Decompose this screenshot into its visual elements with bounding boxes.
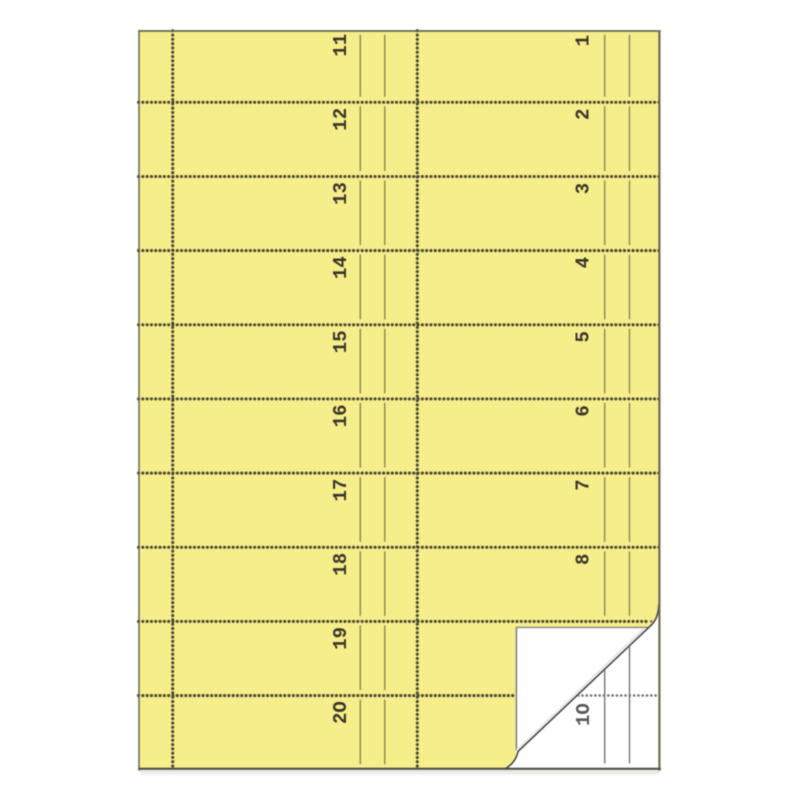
svg-text:7: 7 [573,479,595,490]
svg-text:11: 11 [330,34,352,57]
svg-text:6: 6 [573,405,595,416]
svg-text:17: 17 [330,479,352,502]
svg-text:2O: 2O [330,701,352,724]
svg-text:2: 2 [573,109,595,120]
svg-text:19: 19 [330,627,352,650]
svg-text:13: 13 [330,182,352,205]
svg-text:5: 5 [573,331,595,342]
svg-text:12: 12 [330,108,352,131]
svg-text:4: 4 [573,257,595,268]
svg-text:15: 15 [330,330,352,353]
svg-text:1O: 1O [573,703,595,726]
svg-text:1: 1 [573,35,595,46]
svg-text:8: 8 [573,554,595,565]
svg-text:14: 14 [330,256,352,279]
svg-text:16: 16 [330,404,352,427]
svg-text:18: 18 [330,553,352,576]
svg-text:3: 3 [573,183,595,194]
